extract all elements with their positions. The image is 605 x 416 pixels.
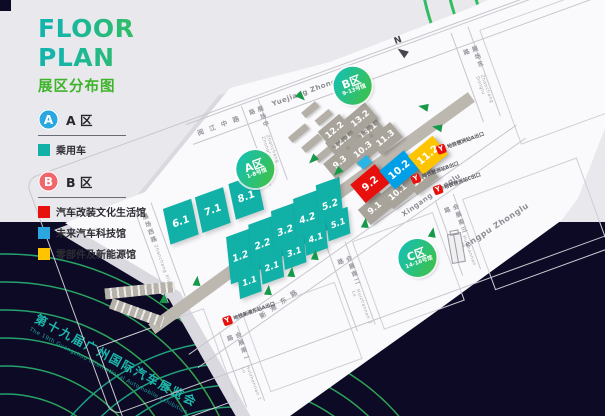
legend-zone-a: A A 区 xyxy=(38,109,218,130)
entrance-arrow-icon xyxy=(160,293,169,304)
teal-key-swatch xyxy=(38,144,50,156)
red-key-swatch xyxy=(38,206,50,218)
zone-a-circle-icon: A xyxy=(38,109,59,130)
zone-b-circle-icon: B xyxy=(38,171,59,192)
legend-item-future-tech: 未来汽车科技馆 xyxy=(38,225,218,240)
legend-item-parts-new-energy: 零部件及新能源馆 xyxy=(38,246,218,261)
page-title: FLOOR PLAN xyxy=(38,14,218,72)
legend-item-modified-cars: 汽车改装文化生活馆 xyxy=(38,204,218,219)
divider xyxy=(38,135,126,136)
entrance-arrow-icon xyxy=(431,123,442,133)
legend-zone-b: B B 区 xyxy=(38,171,218,192)
entrance-arrow-icon xyxy=(428,227,438,238)
yellow-key-swatch xyxy=(38,248,50,260)
entrance-arrow-icon xyxy=(193,275,202,286)
blue-key-swatch xyxy=(38,227,50,239)
entrance-arrow-icon xyxy=(287,267,296,278)
entrance-arrow-icon xyxy=(311,249,320,260)
corner-square-decoration xyxy=(0,0,11,11)
entrance-arrow-icon xyxy=(418,102,429,112)
zone-b-label: B 区 xyxy=(66,172,92,191)
page-subtitle: 展区分布图 xyxy=(38,75,218,96)
entrance-arrow-icon xyxy=(361,217,370,228)
entrance-arrow-icon xyxy=(264,285,273,296)
floor-plan-poster: 第十九届广州国际汽车展览会 The 19th Guangzhou Interna… xyxy=(0,0,605,416)
divider xyxy=(38,197,126,198)
legend-item-passenger-cars: 乘用车 xyxy=(38,142,218,157)
legend-panel: FLOOR PLAN 展区分布图 A A 区 乘用车 B B 区 汽车改装文化生… xyxy=(38,14,218,261)
zone-a-label: A 区 xyxy=(66,110,93,129)
